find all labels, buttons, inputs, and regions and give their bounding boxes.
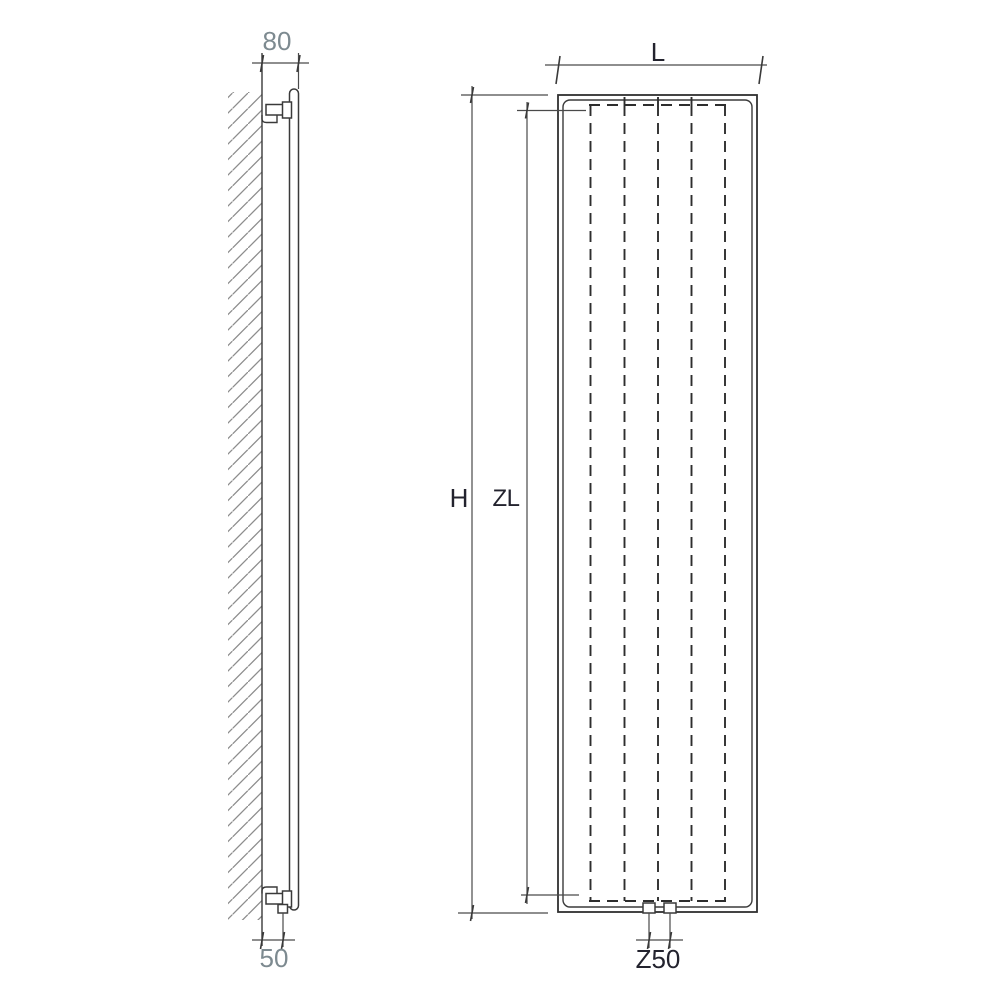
dimension-80: 80 [252,26,309,89]
valve-stub [278,905,288,914]
dim-label-Z50: Z50 [636,944,681,974]
wall-hatch [228,92,262,920]
mounting-bracket-bottom [262,887,292,913]
technical-drawing-canvas: 80 50 [0,0,1000,1000]
connection-stub-right [664,903,676,913]
dim-label-L: L [651,37,665,67]
dimension-ZL: ZL [492,102,586,904]
radiator-panel-side [290,89,299,910]
dimension-Z50: Z50 [636,913,683,974]
dim-label-H: H [450,483,469,513]
mounting-bracket-top [262,102,292,123]
dim-label-ZL: ZL [492,485,519,512]
dimension-50: 50 [252,913,295,973]
radiator-dimension-diagram: 80 50 [0,0,1000,1000]
dim-label-50: 50 [260,943,289,973]
front-view: L H ZL Z50 [450,37,767,974]
connection-stub-left [643,903,655,913]
dim-label-80: 80 [263,26,292,56]
side-view: 80 50 [228,26,309,973]
convector-fins-dashed [589,97,727,901]
dimension-L: L [545,37,767,84]
